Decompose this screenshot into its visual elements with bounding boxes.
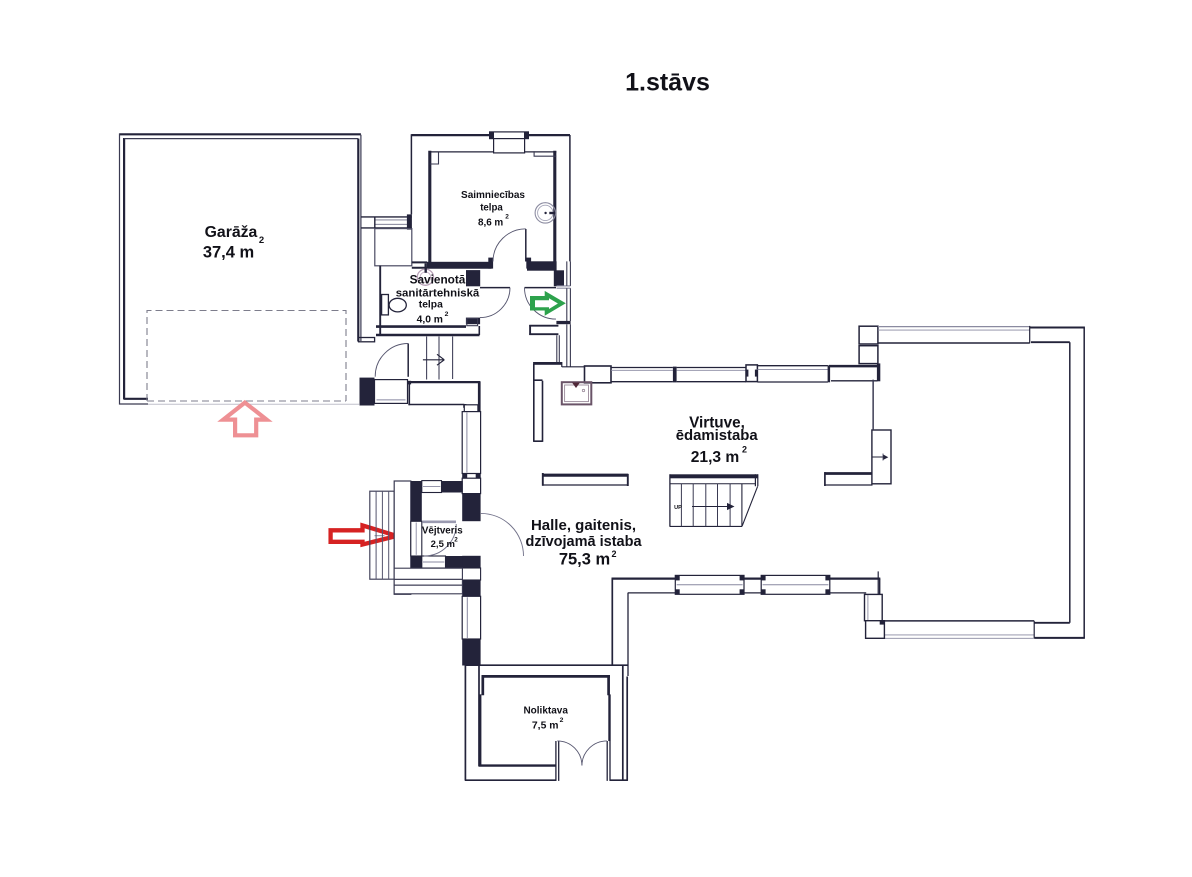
svg-text:UP: UP: [674, 505, 682, 511]
svg-text:2: 2: [742, 445, 747, 455]
svg-text:telpa: telpa: [419, 300, 443, 311]
svg-text:37,4 m: 37,4 m: [203, 244, 254, 262]
svg-text:1.stāvs: 1.stāvs: [625, 69, 710, 97]
svg-text:2,5 m: 2,5 m: [431, 539, 455, 550]
svg-text:2: 2: [611, 549, 616, 559]
svg-text:7,5 m: 7,5 m: [532, 721, 559, 732]
svg-text:ēdamistaba: ēdamistaba: [676, 428, 759, 444]
svg-text:2: 2: [259, 235, 264, 246]
svg-text:2: 2: [560, 717, 564, 724]
svg-text:2: 2: [505, 214, 509, 221]
svg-text:Savienotā: Savienotā: [410, 273, 466, 287]
svg-text:4,0 m: 4,0 m: [417, 314, 443, 325]
svg-text:sanitārtehniskā: sanitārtehniskā: [396, 288, 480, 300]
svg-text:8,6 m: 8,6 m: [478, 218, 503, 229]
svg-text:2: 2: [454, 537, 458, 544]
svg-text:21,3 m: 21,3 m: [691, 449, 740, 466]
svg-text:Garāža: Garāža: [205, 224, 258, 241]
svg-text:Halle, gaitenis,: Halle, gaitenis,: [531, 517, 636, 534]
svg-text:Saimniecības: Saimniecības: [461, 190, 525, 201]
svg-text:75,3 m: 75,3 m: [559, 551, 610, 569]
svg-text:Noliktava: Noliktava: [523, 706, 568, 717]
svg-text:Vējtveris: Vējtveris: [422, 526, 463, 537]
svg-text:2: 2: [445, 311, 449, 318]
svg-text:telpa: telpa: [480, 203, 503, 214]
svg-text:dzīvojamā istaba: dzīvojamā istaba: [525, 534, 642, 550]
